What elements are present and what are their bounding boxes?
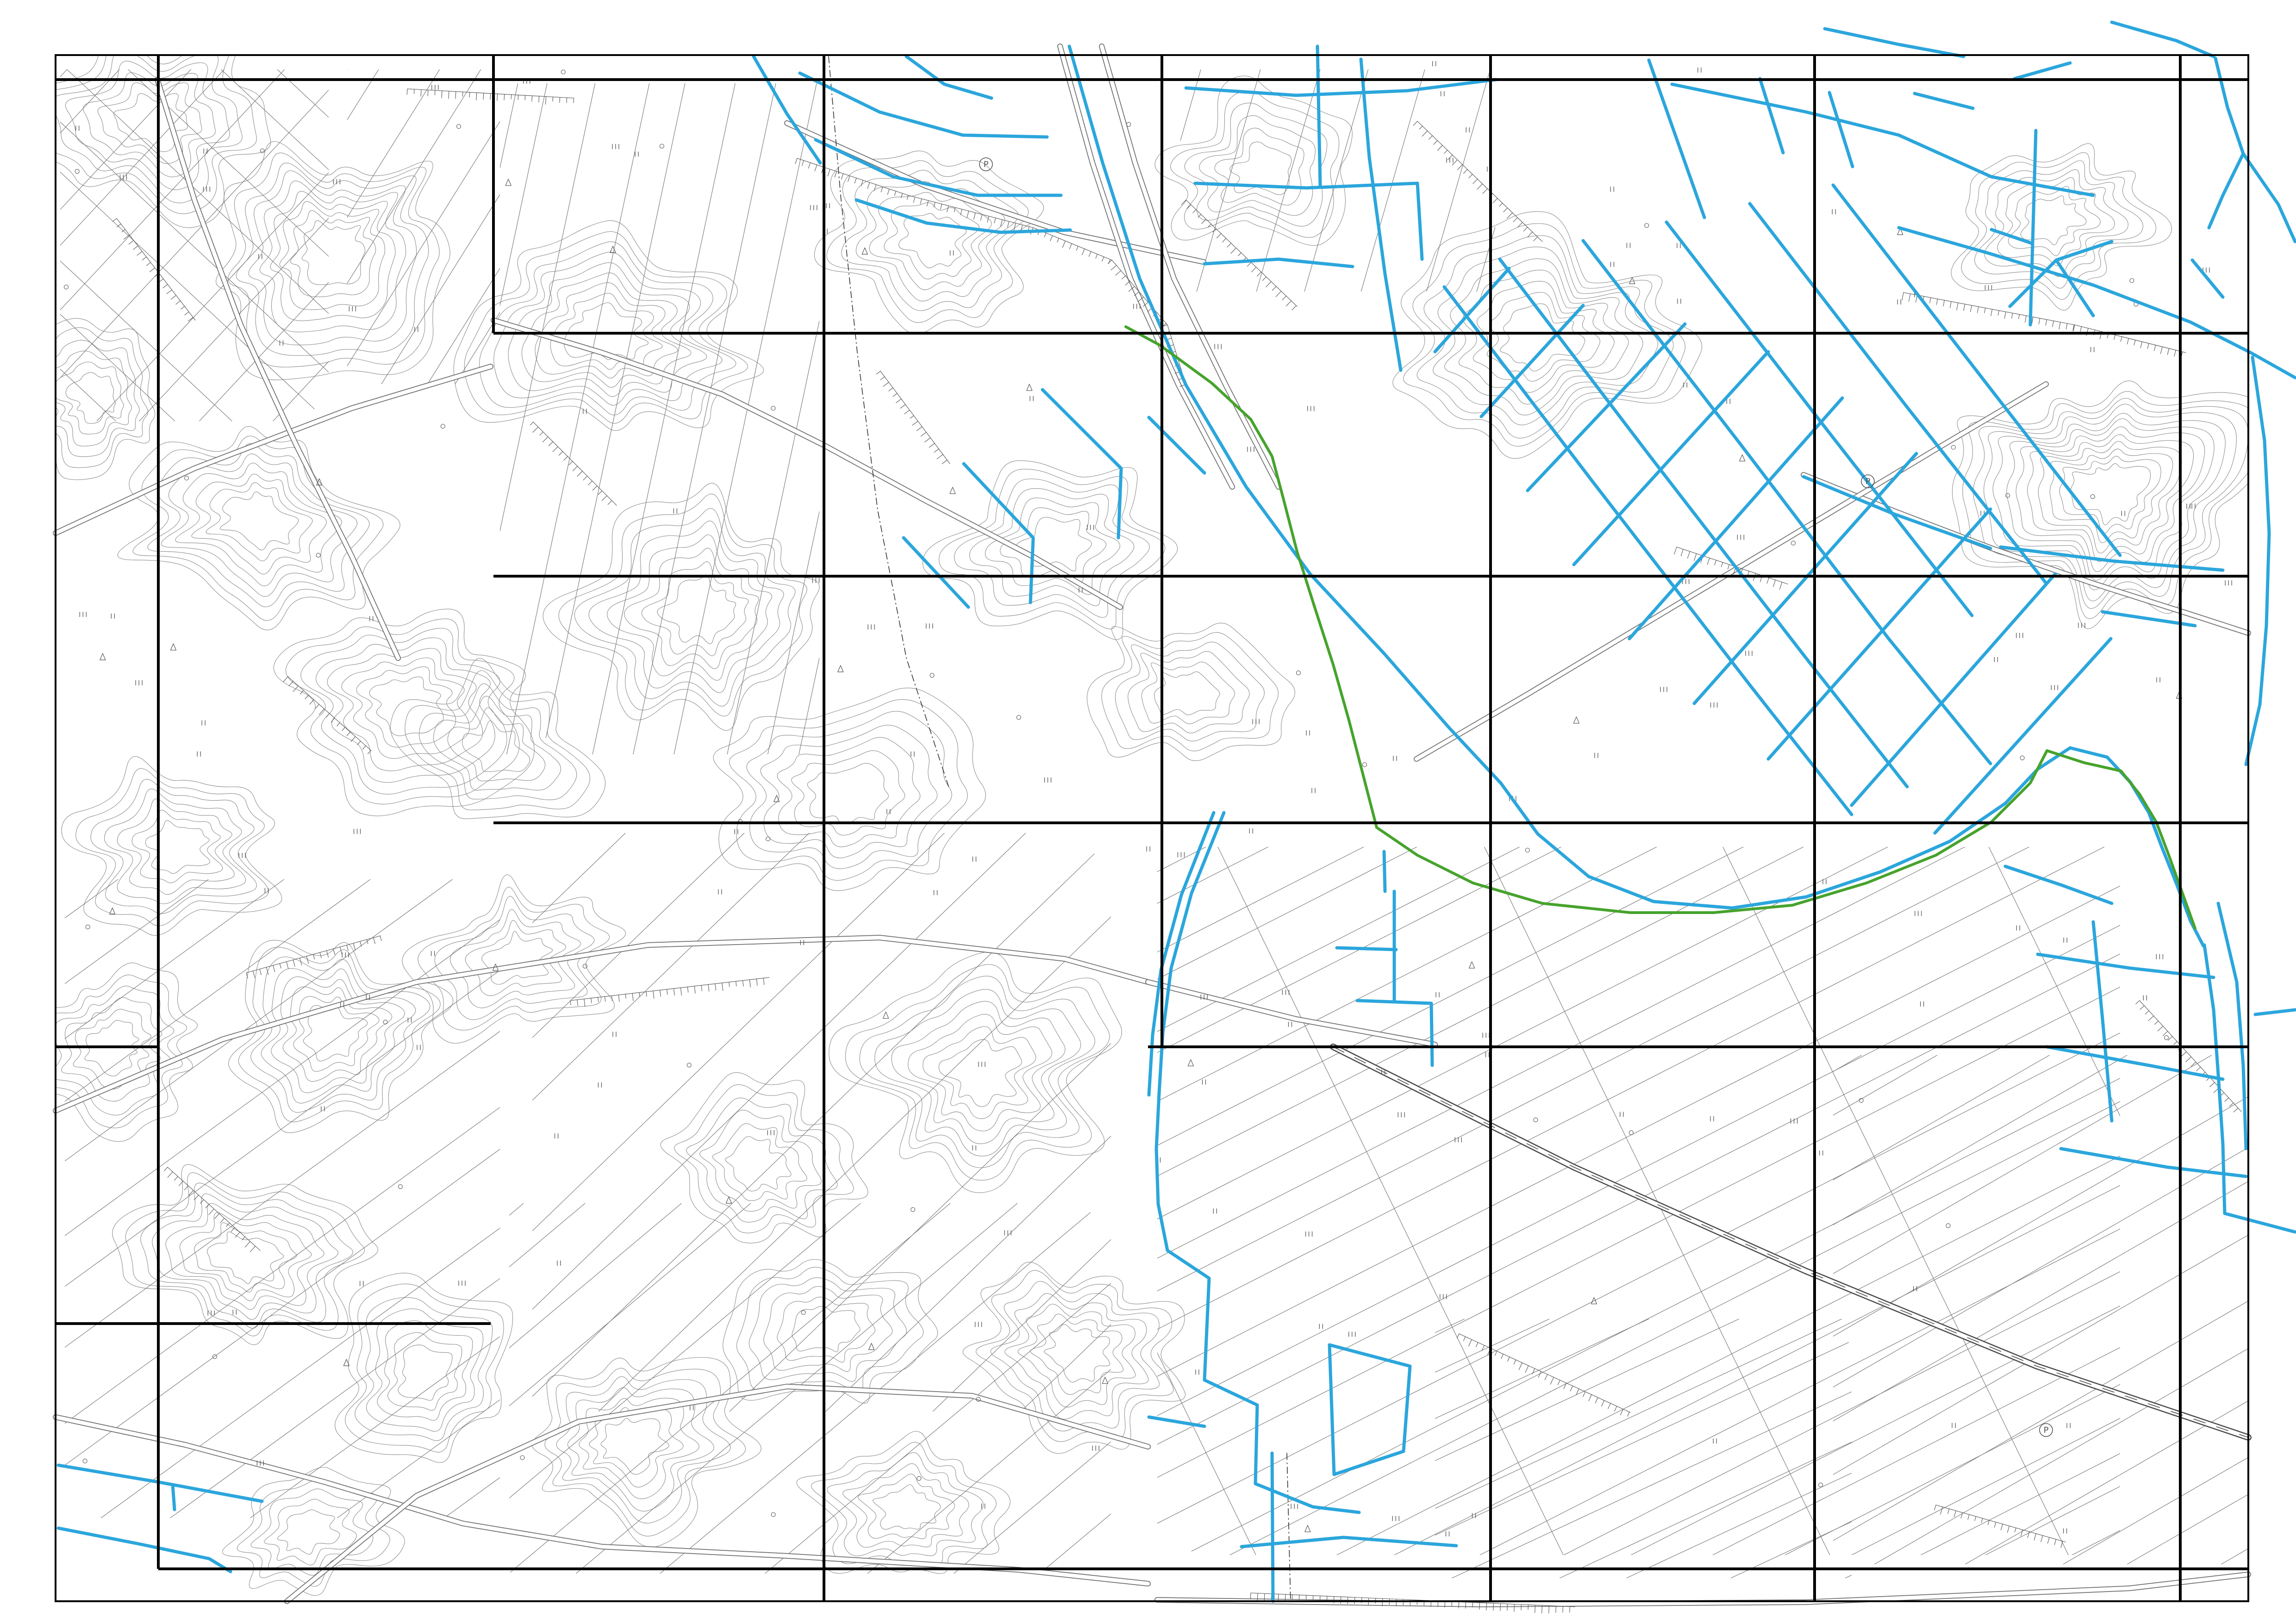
tree-symbol (1791, 541, 1795, 545)
route-layer (1126, 327, 2195, 928)
boundary-lines-layer (829, 56, 1291, 1601)
tree-symbol (316, 553, 320, 557)
topographic-map-sheet: PPP (0, 0, 2296, 1623)
tree-symbol (766, 837, 770, 841)
tree-symbol (911, 1207, 915, 1212)
tree-symbol (2130, 279, 2134, 283)
tree-symbol (771, 406, 775, 410)
parking-symbol: P (980, 158, 992, 171)
parcel-zone (0, 275, 1682, 1623)
tree-symbol (2165, 1036, 2169, 1040)
tree-symbol (456, 124, 461, 129)
parcel-zone (96, 600, 1513, 1623)
tree-symbol (1629, 1131, 1633, 1135)
tree-symbol (1951, 445, 1955, 449)
tree-symbol (1363, 763, 1367, 767)
tree-symbol (441, 424, 445, 429)
parcel-zone (0, 0, 686, 724)
tree-symbol (1645, 224, 1649, 228)
tree-symbol (930, 673, 934, 678)
tree-symbol (398, 1185, 402, 1189)
slope-hatching-layer (113, 89, 2241, 1613)
parking-symbol: P (2040, 1424, 2053, 1436)
tree-symbol (583, 964, 587, 968)
tree-symbol (383, 1020, 387, 1024)
tree-symbol (2006, 493, 2010, 497)
svg-text:P: P (984, 160, 989, 169)
tree-symbol (2020, 756, 2024, 760)
svg-text:P: P (2044, 1425, 2049, 1435)
tree-symbol (917, 1476, 921, 1480)
parcel-zone (881, 0, 1778, 486)
svg-text:P: P (1865, 477, 1871, 486)
tree-symbol (1127, 122, 1131, 126)
tree-symbol (1946, 1224, 1950, 1228)
tree-symbol (1017, 715, 1021, 720)
tree-symbol (1525, 848, 1529, 852)
parcel-zone (0, 0, 1497, 972)
tree-symbol (561, 70, 565, 74)
tree-symbol (1297, 671, 1301, 675)
tree-symbol (75, 169, 79, 174)
tree-symbol (520, 1455, 524, 1460)
parking-symbol: P (1861, 475, 1874, 488)
parcel-zone (303, 0, 2296, 1623)
tree-symbol (260, 149, 264, 153)
tree-symbol (771, 1512, 775, 1517)
parcel-zone (1188, 892, 2094, 1623)
tree-symbol (1534, 1118, 1538, 1122)
tree-symbol (2090, 495, 2095, 499)
tree-symbol (83, 1459, 87, 1463)
tree-symbol (687, 1063, 691, 1067)
tree-symbol (184, 476, 188, 480)
map-canvas: PPP (0, 0, 2296, 1623)
tree-symbol (64, 285, 69, 289)
tree-symbol (1819, 1483, 1823, 1487)
tree-symbol (86, 925, 90, 929)
tree-symbol (801, 1310, 805, 1314)
tree-symbol (660, 144, 664, 148)
